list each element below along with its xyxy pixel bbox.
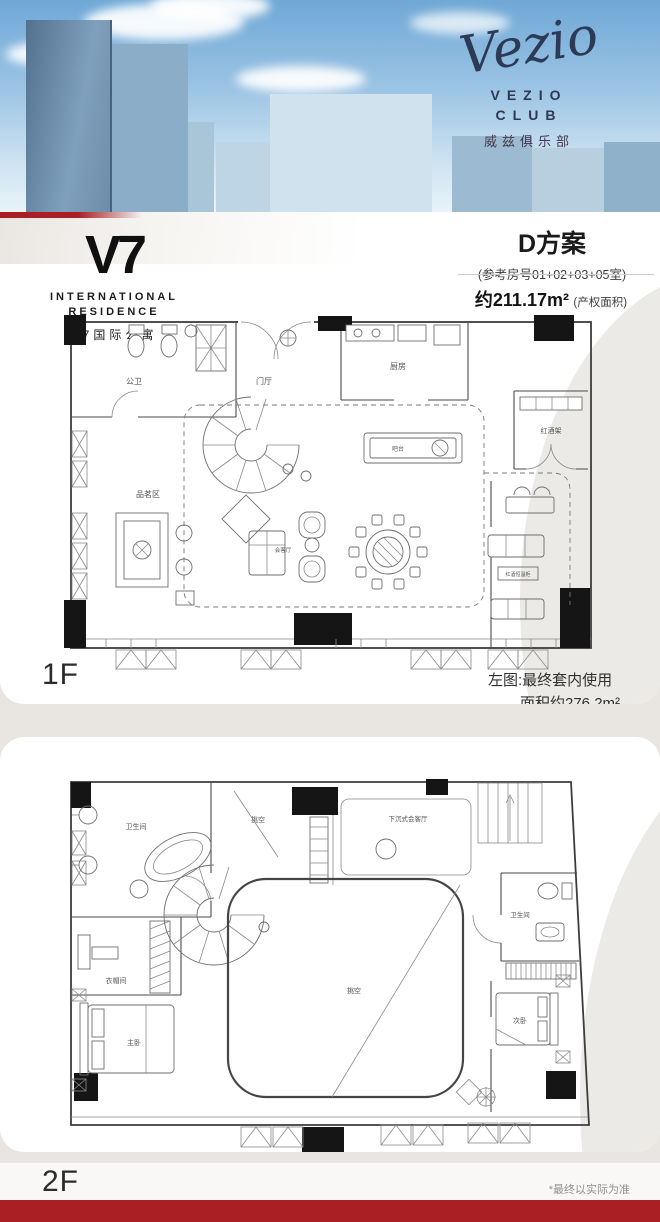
columns-1f xyxy=(64,315,590,648)
bathroom-1f: 公卫 xyxy=(126,325,226,386)
section-floor2: 卫生间 衣帽间 挑空 xyxy=(0,737,660,1152)
left-windows-1f xyxy=(72,431,87,599)
hero-photo: Vezio VEZIO CLUB 威兹俱乐部 xyxy=(0,0,660,212)
building-center-low xyxy=(216,142,270,212)
bedroom-right-2f: 次卧 xyxy=(496,975,570,1063)
label-void-center: 挑空 xyxy=(347,986,361,995)
floor1-note-line1: 左图:最终套内使用 xyxy=(488,670,620,693)
label-wine-rack: 红酒架 xyxy=(541,426,562,435)
spiral-stair-1f xyxy=(203,397,311,493)
label-kitchen-1f: 厨房 xyxy=(390,361,406,371)
sunken-living-2f: 下沉式会客厅 xyxy=(341,799,471,875)
kitchen-1f: 厨房 xyxy=(346,325,460,371)
v7-logo-line1: INTERNATIONAL xyxy=(34,290,194,305)
label-master-bedroom: 主卧 xyxy=(127,1038,141,1047)
balcony-2f xyxy=(241,1123,530,1147)
building-tower-left xyxy=(26,20,112,212)
footer-strip: 2F *最终以实际为准 xyxy=(0,1163,660,1200)
building-mid-small xyxy=(188,122,214,212)
building-right-2 xyxy=(532,148,604,212)
label-second-bedroom: 次卧 xyxy=(513,1016,527,1025)
floorplan-2f: 卫生间 衣帽间 挑空 xyxy=(36,767,616,1152)
header-divider-line xyxy=(458,274,654,275)
label-sunken-living: 下沉式会客厅 xyxy=(389,814,429,823)
label-bar: 吧台 xyxy=(392,445,404,453)
building-right-3 xyxy=(604,142,660,212)
vent-icon xyxy=(280,330,296,346)
building-center xyxy=(270,94,432,212)
label-tea-area: 品茗区 xyxy=(136,489,160,499)
left-windows-2f xyxy=(72,831,86,885)
vezio-club-line2: CLUB xyxy=(424,105,634,125)
label-living-1f: 会客厅 xyxy=(275,546,292,554)
label-bath-right-2f: 卫生间 xyxy=(510,910,530,919)
bathroom-left-2f: 卫生间 xyxy=(72,806,219,898)
floor2-label: 2F xyxy=(42,1165,79,1199)
red-accent-bar xyxy=(0,212,142,218)
disclaimer-text: *最终以实际为准 xyxy=(549,1181,630,1197)
floor1-note: 左图:最终套内使用 面积约276.2m² xyxy=(488,670,620,704)
bar-counter-1f: 吧台 xyxy=(364,433,462,463)
dining-table-1f xyxy=(349,515,427,589)
label-bath-1f: 公卫 xyxy=(126,377,142,386)
label-foyer-1f: 门厅 xyxy=(256,376,272,386)
label-bath-left-2f: 卫生间 xyxy=(126,822,147,831)
void-center-2f: 挑空 xyxy=(228,879,463,1097)
vezio-club-chinese: 威兹俱乐部 xyxy=(424,131,634,150)
floor1-label: 1F xyxy=(42,658,79,692)
flyer-page: Vezio VEZIO CLUB 威兹俱乐部 V7 INTERNATIONAL … xyxy=(0,0,660,1222)
bathroom-right-2f: 卫生间 xyxy=(510,883,572,941)
wardrobe-right-2f xyxy=(506,963,576,979)
label-cloakroom: 衣帽间 xyxy=(106,976,127,985)
straight-stair-2f xyxy=(478,783,542,843)
bottom-red-bar xyxy=(0,1200,660,1222)
section-floor1: V7 INTERNATIONAL RESIDENCE V7国际公寓 D方案 (参… xyxy=(0,212,660,704)
walls-2f xyxy=(71,782,589,1125)
plant-2f xyxy=(456,1079,496,1107)
sofa-group-1f: 会客厅 xyxy=(222,495,325,582)
floor1-note-line2: 面积约276.2m² xyxy=(488,693,620,705)
v7-logo: V7 xyxy=(34,228,194,282)
building-tower-left2 xyxy=(112,44,188,212)
label-wine-cabinet: 红酒恒温柜 xyxy=(505,571,530,578)
floorplan-1f: 公卫 门厅 厨房 红酒架 xyxy=(36,305,616,683)
wine-lounge-1f: 红酒恒温柜 xyxy=(488,487,554,619)
tea-area-1f: 品茗区 xyxy=(116,489,194,605)
vezio-brand-block: Vezio VEZIO CLUB 威兹俱乐部 xyxy=(424,18,634,150)
plan-title: D方案 xyxy=(452,224,652,260)
ladder-shaft-2f xyxy=(310,815,333,885)
wine-room-1f: 红酒架 xyxy=(520,397,582,435)
vezio-club-line1: VEZIO xyxy=(424,85,634,105)
cloakroom-2f: 衣帽间 xyxy=(78,921,170,993)
cloud xyxy=(236,66,366,92)
